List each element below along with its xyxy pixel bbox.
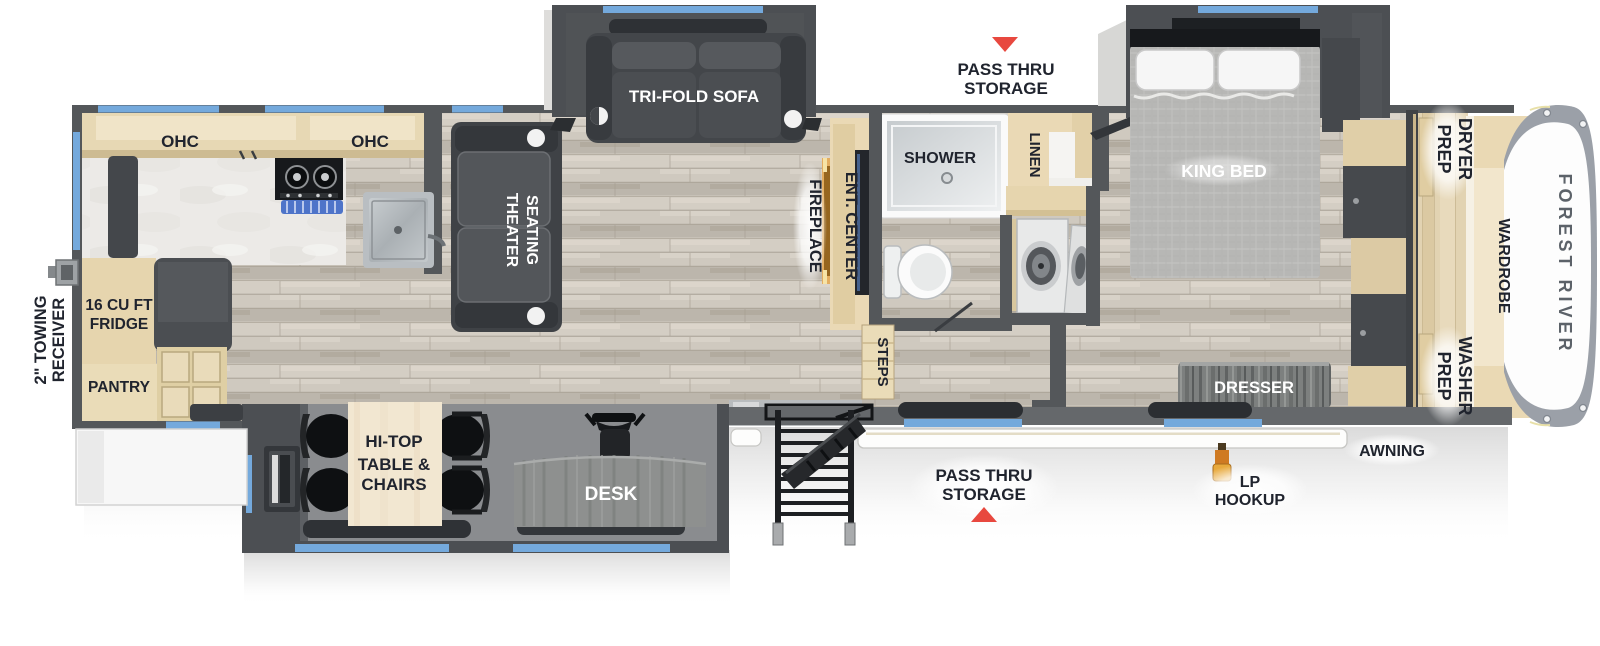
svg-text:AWNING: AWNING: [1359, 443, 1425, 460]
svg-text:PREP: PREP: [1434, 124, 1454, 173]
svg-text:TABLE &: TABLE &: [358, 455, 430, 474]
svg-text:OHC: OHC: [351, 132, 389, 151]
svg-text:FRIDGE: FRIDGE: [90, 316, 149, 333]
svg-text:16 CU FT: 16 CU FT: [85, 297, 153, 314]
svg-text:LINEN: LINEN: [1026, 133, 1043, 178]
svg-text:WARDROBE: WARDROBE: [1495, 218, 1512, 313]
svg-text:STEPS: STEPS: [874, 337, 891, 386]
svg-text:LP: LP: [1240, 474, 1261, 491]
svg-text:KING BED: KING BED: [1181, 161, 1267, 181]
svg-text:HOOKUP: HOOKUP: [1215, 492, 1286, 509]
svg-text:DESK: DESK: [585, 484, 638, 505]
svg-text:STORAGE: STORAGE: [942, 485, 1026, 504]
svg-text:SHOWER: SHOWER: [904, 150, 976, 167]
svg-text:PASS THRU: PASS THRU: [958, 60, 1055, 79]
svg-text:HI-TOP: HI-TOP: [365, 432, 422, 451]
svg-text:CHAIRS: CHAIRS: [361, 475, 426, 494]
svg-text:PASS THRU: PASS THRU: [936, 466, 1033, 485]
svg-text:STORAGE: STORAGE: [964, 79, 1048, 98]
svg-text:THEATER: THEATER: [503, 193, 520, 268]
svg-text:DRYER: DRYER: [1455, 118, 1475, 180]
svg-text:ENT. CENTER: ENT. CENTER: [842, 172, 860, 280]
svg-text:FOREST RIVER: FOREST RIVER: [1555, 173, 1575, 354]
svg-text:OHC: OHC: [161, 132, 199, 151]
svg-text:2" TOWING: 2" TOWING: [32, 295, 50, 384]
svg-text:PREP: PREP: [1434, 351, 1454, 400]
svg-text:FIREPLACE: FIREPLACE: [806, 179, 824, 273]
svg-text:RECEIVER: RECEIVER: [50, 298, 68, 382]
svg-text:DRESSER: DRESSER: [1214, 379, 1294, 397]
svg-text:PANTRY: PANTRY: [88, 379, 151, 396]
svg-text:WASHER: WASHER: [1455, 336, 1475, 415]
svg-text:TRI-FOLD SOFA: TRI-FOLD SOFA: [629, 87, 759, 106]
svg-text:SEATING: SEATING: [523, 195, 540, 265]
